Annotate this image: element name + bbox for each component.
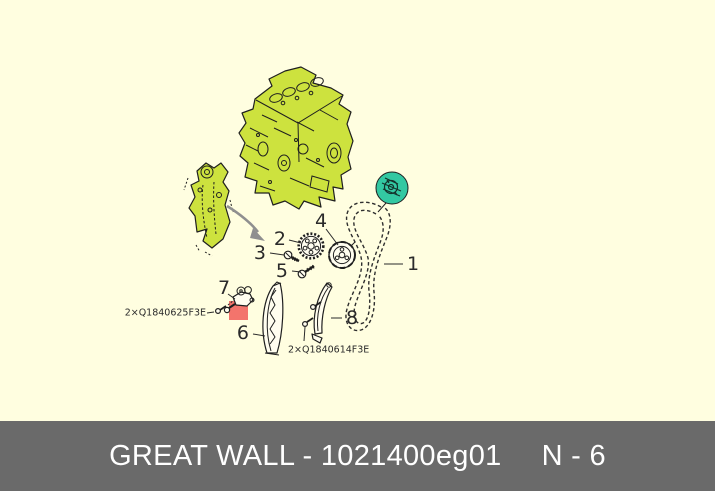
footer-bar: GREAT WALL - 1021400eg01 N - 6 [0,421,715,491]
callout-1[interactable]: 1 [407,253,419,275]
part-4-vvt-sprocket [329,242,355,268]
callout-7[interactable]: 7 [218,277,230,299]
left-bolt-part-number: 2×Q1840625F3E [125,308,206,319]
callout-8[interactable]: 8 [346,307,358,329]
part-5-bolt [298,265,314,278]
exploded-diagram: 1 2 3 4 5 6 7 8 2×Q1840625F3E 2×Q1840614… [0,0,715,421]
callout-3[interactable]: 3 [254,242,266,264]
module-body [189,163,230,248]
parts-catalog-page: 1 2 3 4 5 6 7 8 2×Q1840625F3E 2×Q1840614… [0,0,715,491]
right-bolt-part-number: 2×Q1840614F3E [288,345,369,356]
engine-block-highlighted [239,67,353,209]
callout-2[interactable]: 2 [274,228,286,250]
part-8-tensioner-arm [303,283,332,343]
footer-brand-and-code: GREAT WALL - 1021400eg01 [109,440,501,473]
teal-highlight-circle[interactable] [376,172,408,204]
crank-sprocket-teal-highlight[interactable] [376,172,408,212]
part-6-chain-guide [263,282,283,355]
callout-5[interactable]: 5 [276,260,288,282]
timing-chain-module-assembled [184,163,233,256]
part-2-camshaft-sprocket [299,234,324,259]
callout-4[interactable]: 4 [315,210,327,232]
footer-page-ref: N - 6 [542,440,606,473]
assembly-direction-arrow [227,206,265,241]
callout-6[interactable]: 6 [237,322,249,344]
